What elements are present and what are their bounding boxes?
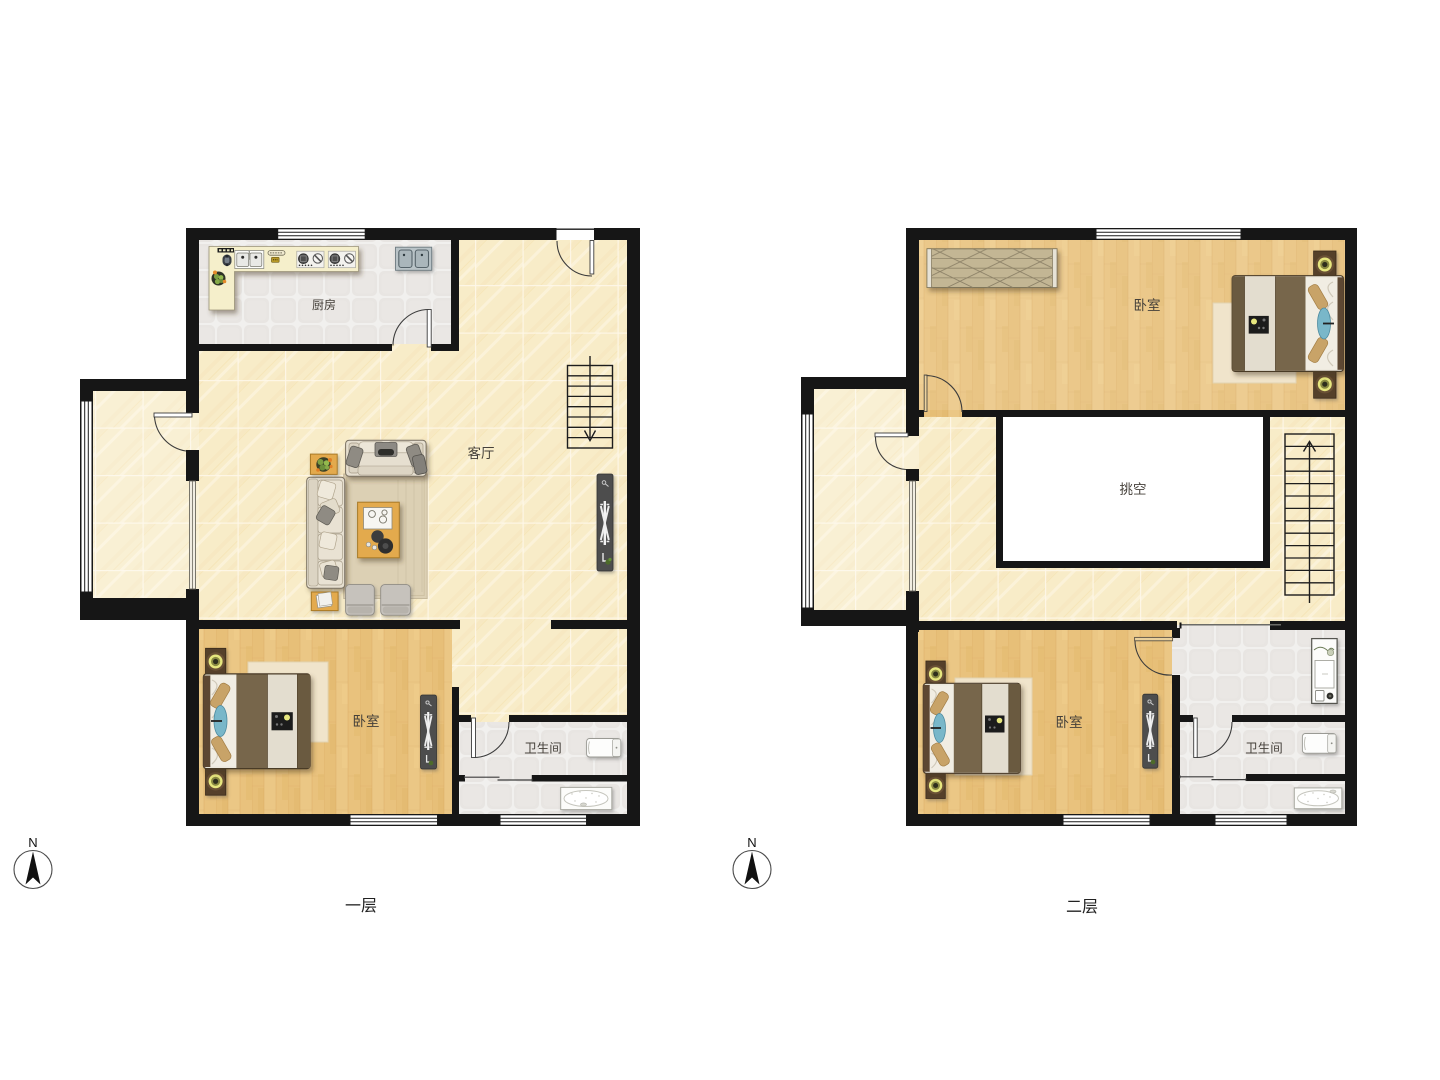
svg-text:卧室: 卧室 bbox=[1134, 297, 1161, 313]
svg-text:卧室: 卧室 bbox=[353, 713, 380, 729]
svg-text:N: N bbox=[28, 835, 37, 850]
svg-text:卫生间: 卫生间 bbox=[1245, 742, 1283, 756]
svg-text:N: N bbox=[747, 835, 756, 850]
svg-text:卧室: 卧室 bbox=[1056, 714, 1083, 730]
svg-text:一层: 一层 bbox=[345, 898, 377, 915]
svg-text:二层: 二层 bbox=[1066, 899, 1098, 916]
svg-text:挑空: 挑空 bbox=[1120, 482, 1147, 497]
svg-text:客厅: 客厅 bbox=[468, 445, 495, 461]
svg-text:卫生间: 卫生间 bbox=[524, 742, 562, 756]
svg-text:厨房: 厨房 bbox=[312, 297, 336, 312]
